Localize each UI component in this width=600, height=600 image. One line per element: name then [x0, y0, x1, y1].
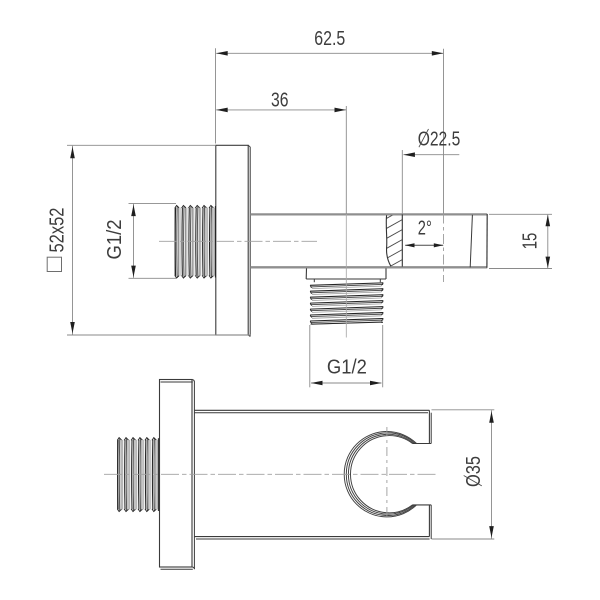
- svg-text:O35: O35: [462, 456, 485, 487]
- svg-text:G1/2: G1/2: [103, 220, 126, 260]
- svg-text:36: 36: [271, 89, 289, 112]
- svg-text:15: 15: [519, 233, 542, 250]
- svg-text:G1/2: G1/2: [327, 355, 367, 378]
- svg-text:2°: 2°: [418, 217, 432, 240]
- svg-text:62.5: 62.5: [314, 27, 345, 50]
- svg-text:O22.5: O22.5: [418, 128, 461, 151]
- svg-text:52x52: 52x52: [46, 208, 69, 253]
